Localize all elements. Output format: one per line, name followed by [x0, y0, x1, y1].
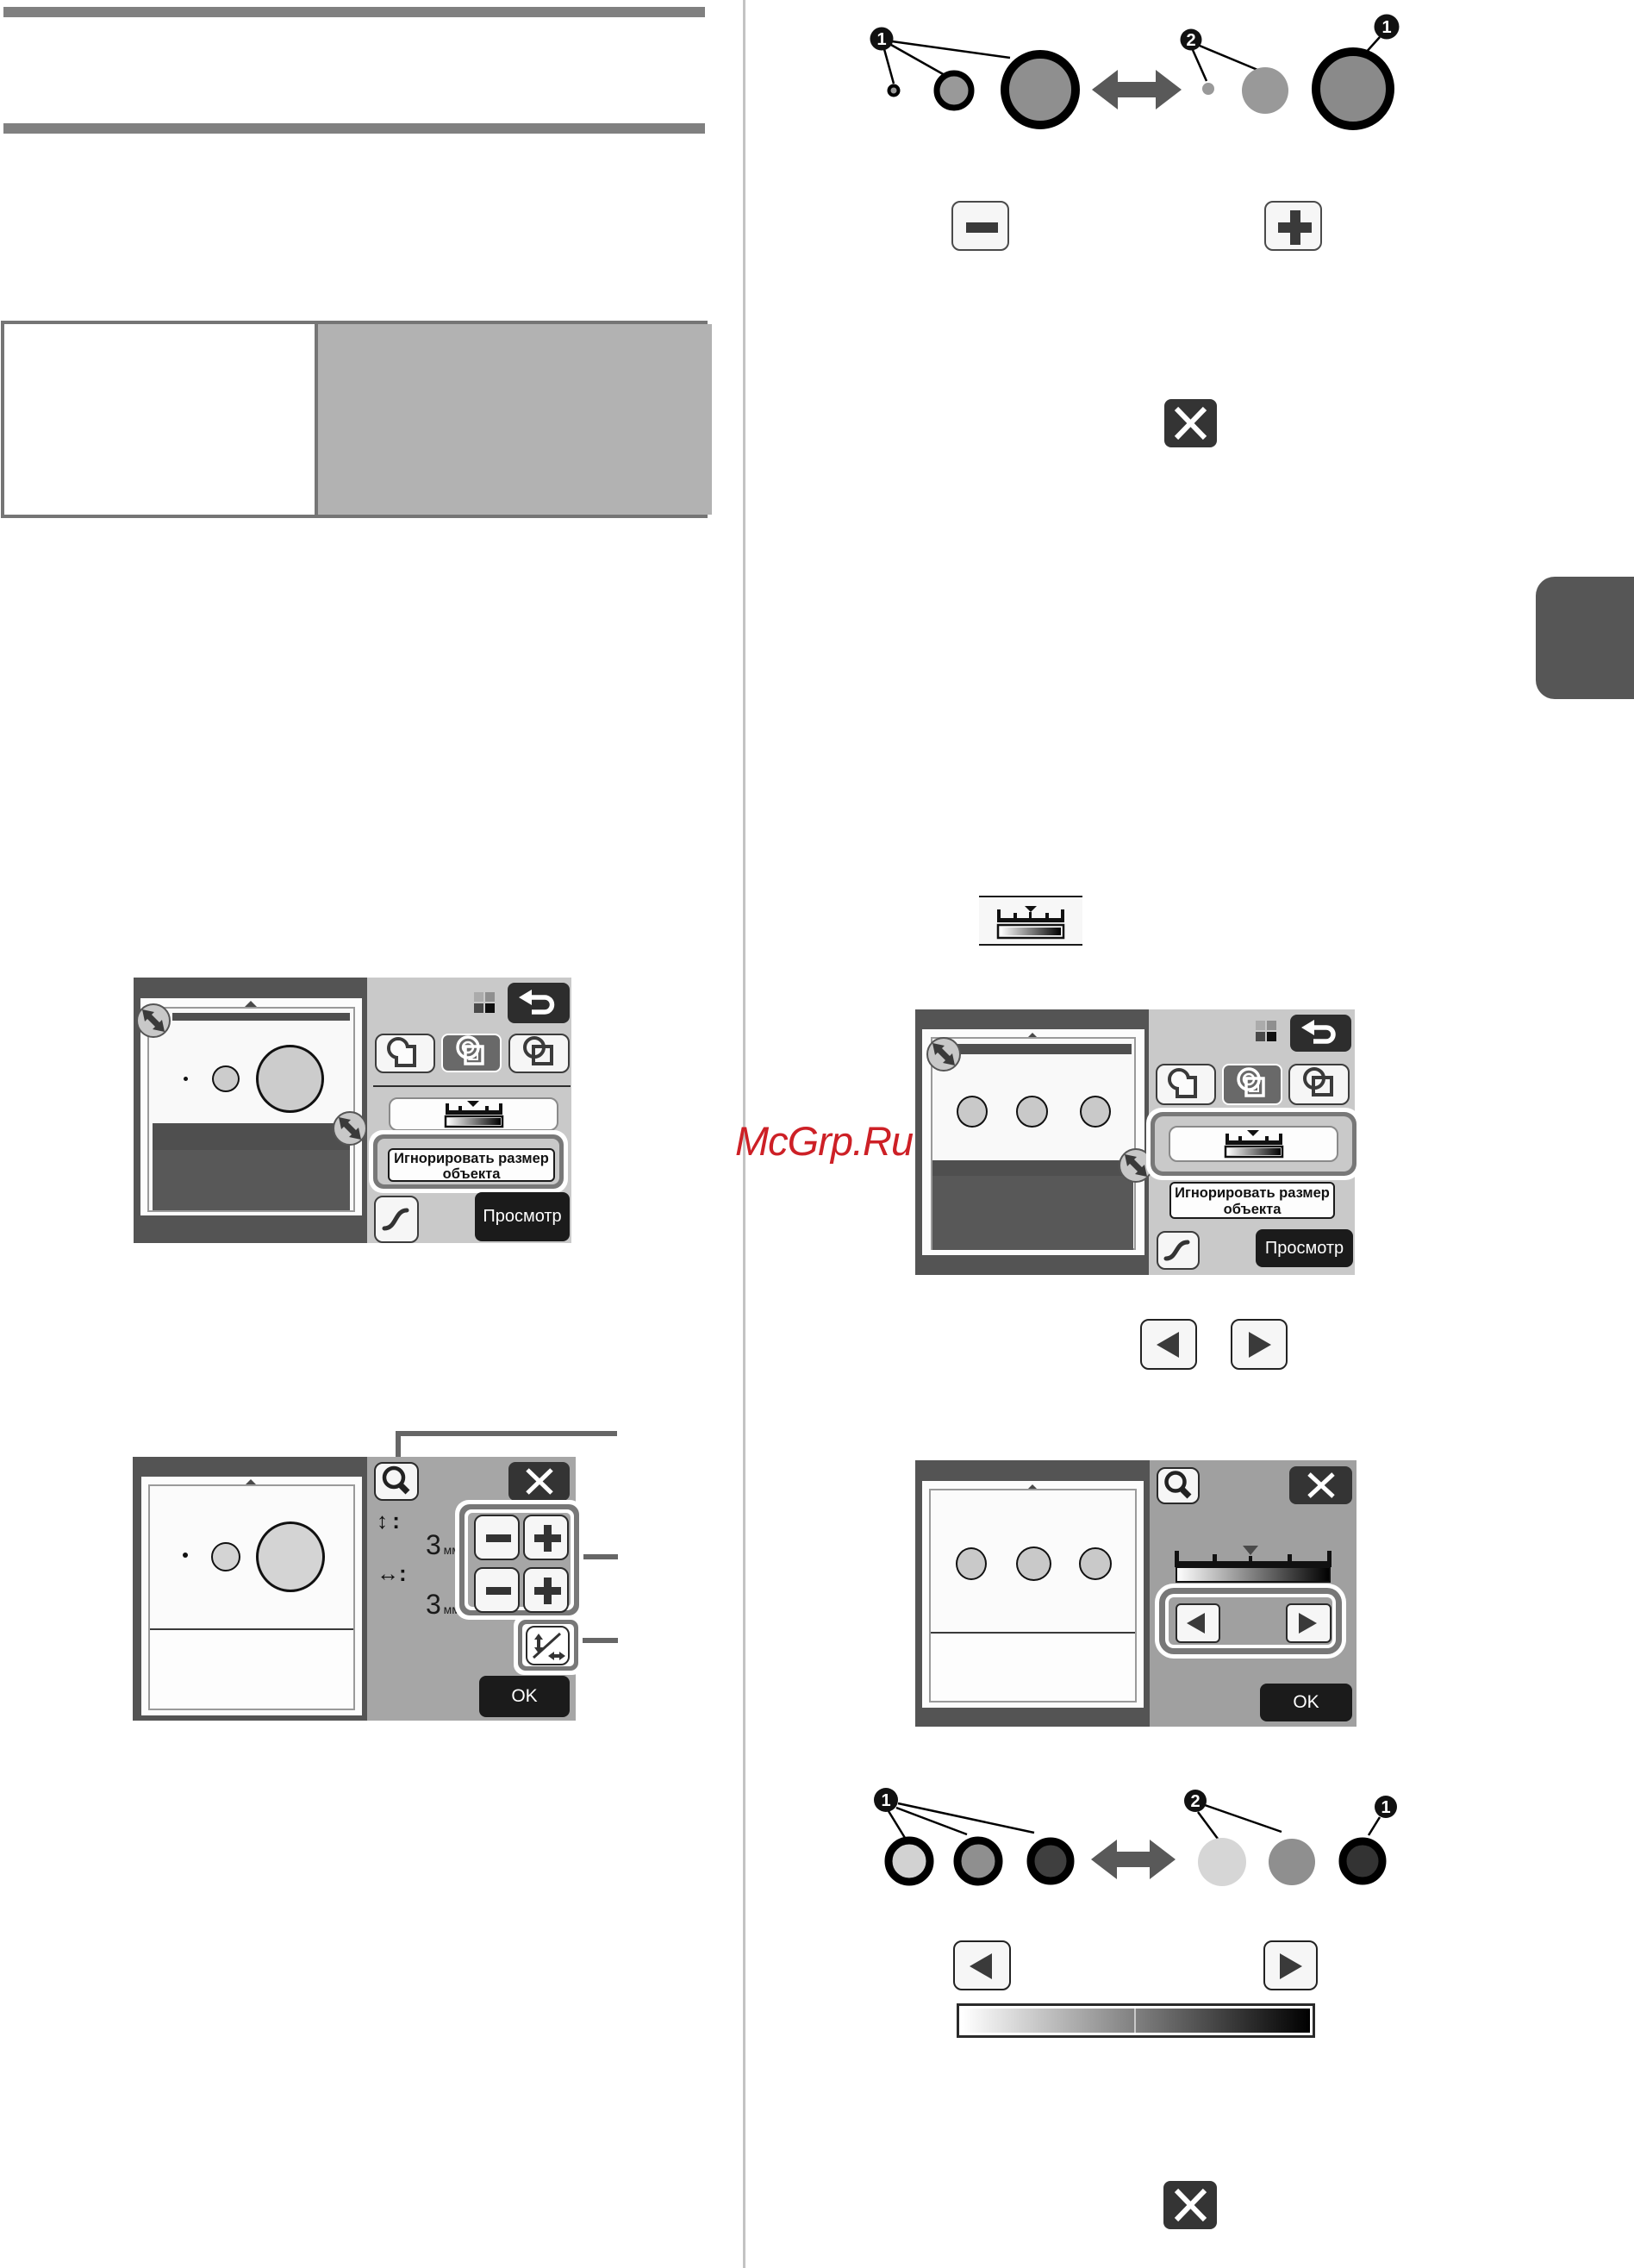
- svg-text:1: 1: [876, 30, 886, 49]
- svg-text:2: 2: [1186, 31, 1195, 50]
- svg-text:1: 1: [1381, 18, 1391, 37]
- svg-text:1: 1: [881, 1791, 890, 1810]
- svg-text:2: 2: [1190, 1792, 1200, 1811]
- svg-text:1: 1: [1381, 1798, 1390, 1817]
